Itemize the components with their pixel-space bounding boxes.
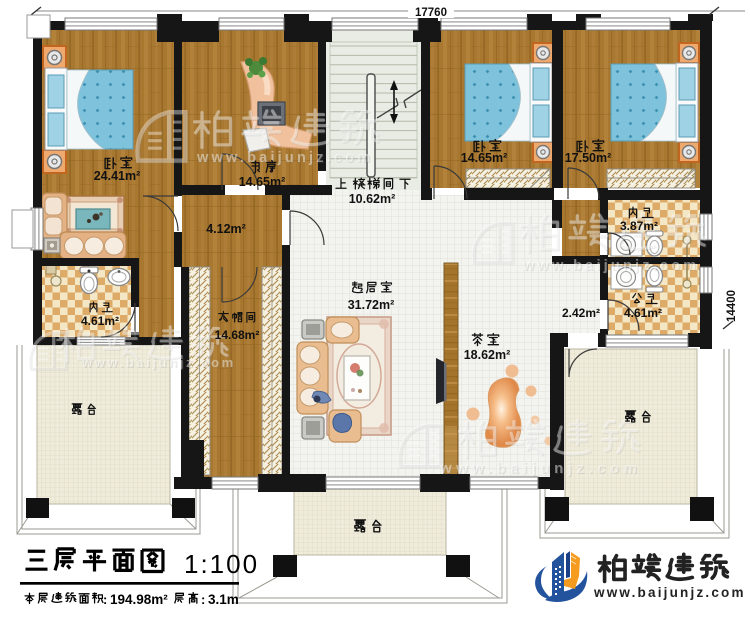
svg-text:17.50m²: 17.50m²: [565, 151, 612, 165]
svg-text:14.68m²: 14.68m²: [215, 328, 260, 342]
svg-text:14.65m²: 14.65m²: [239, 175, 286, 189]
svg-text:24.41m²: 24.41m²: [94, 169, 141, 183]
svg-text:17760: 17760: [415, 7, 447, 19]
svg-text:4.61m²: 4.61m²: [624, 306, 662, 320]
svg-text:10.62m²: 10.62m²: [349, 192, 396, 206]
svg-text:14400: 14400: [726, 290, 738, 322]
svg-text::: :: [103, 592, 107, 607]
svg-text:www.baijunjz.com: www.baijunjz.com: [81, 355, 236, 370]
svg-text:www.baijunjz.com: www.baijunjz.com: [522, 258, 699, 274]
svg-text:3.87m²: 3.87m²: [620, 219, 658, 233]
svg-text:14.65m²: 14.65m²: [461, 151, 508, 165]
svg-text:2.42m²: 2.42m²: [562, 306, 600, 320]
svg-text::: :: [201, 592, 205, 607]
svg-text:18.62m²: 18.62m²: [464, 348, 511, 362]
svg-text:31.72m²: 31.72m²: [348, 298, 395, 312]
svg-text:4.61m²: 4.61m²: [81, 314, 119, 328]
svg-text:3.1m: 3.1m: [208, 592, 239, 607]
svg-text:www.baijunjz.com: www.baijunjz.com: [439, 460, 641, 477]
svg-text:www.baijunjz.com: www.baijunjz.com: [593, 585, 746, 600]
svg-text:1:100: 1:100: [184, 549, 259, 579]
svg-text:4.12m²: 4.12m²: [206, 222, 246, 236]
svg-text:www.baijunjz.com: www.baijunjz.com: [196, 150, 373, 166]
svg-text:194.98m²: 194.98m²: [110, 592, 168, 607]
